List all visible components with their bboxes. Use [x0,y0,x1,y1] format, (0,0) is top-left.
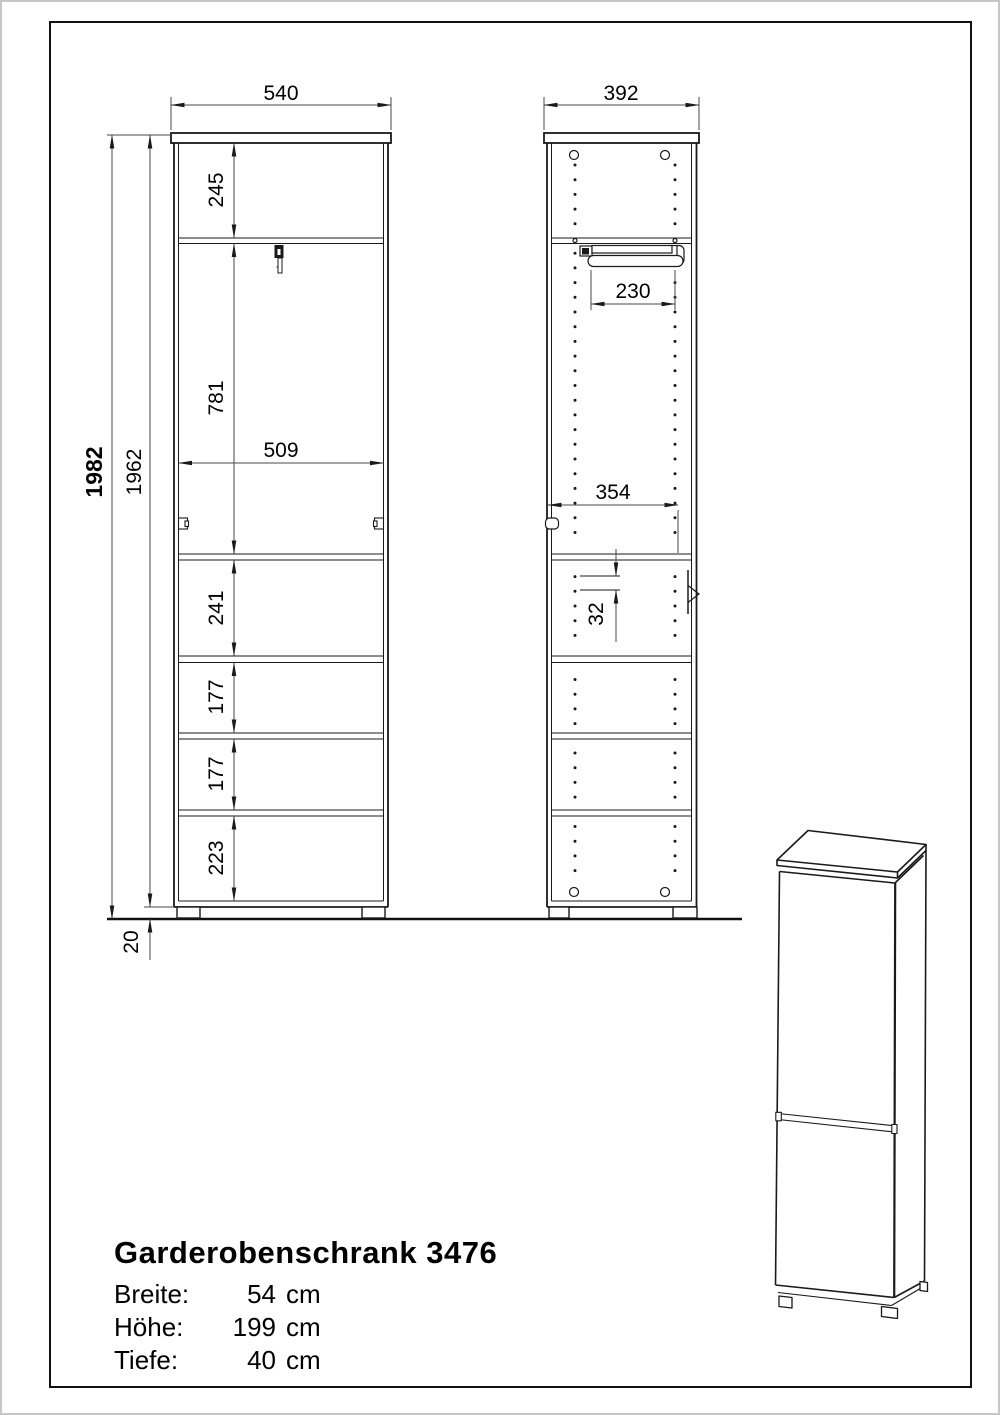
side-foot-front [549,907,569,918]
divider-strip [776,1112,897,1133]
title-block: Garderobenschrank 3476 Breite: 54 cm Höh… [114,1235,497,1377]
pullout-rail [580,246,684,267]
front-view-dimensions [107,97,391,960]
dim-side-rail-depth: 230 [615,280,650,303]
spec-label: Höhe: [114,1311,218,1344]
front-hinges [179,518,384,529]
dim-side-hole-pitch: 32 [585,602,608,625]
dim-front-width: 540 [263,82,298,105]
side-foot-back [673,907,697,918]
spec-row-width: Breite: 54 cm [114,1278,497,1311]
front-top-panel [171,133,391,143]
dim-front-opening-width: 509 [263,439,298,462]
front-foot-left [177,907,200,918]
spec-value: 199 [218,1311,276,1344]
front-shelves [179,238,384,901]
spec-label: Breite: [114,1278,218,1311]
side-top-panel [544,133,699,143]
spec-label: Tiefe: [114,1344,218,1377]
spec-row-height: Höhe: 199 cm [114,1311,497,1344]
pin-hole-rows [574,164,677,873]
dim-front-section-3: 177 [205,756,228,791]
spec-unit: cm [286,1344,321,1377]
spec-value: 54 [218,1278,276,1311]
dim-front-body-height: 1962 [123,449,146,496]
spec-row-depth: Tiefe: 40 cm [114,1344,497,1377]
hole-pitch-marks [580,576,620,590]
side-view-dimension-labels: 392 230 354 32 [585,82,651,626]
front-view-drawing [171,133,391,918]
dim-front-top-section: 245 [205,172,228,207]
technical-drawing-page: 540 509 1982 1962 20 245 781 241 177 177… [0,0,1000,1415]
perspective-view-drawing [776,831,928,1319]
side-hinge [546,518,559,529]
lock-key-icon [275,245,284,273]
spec-unit: cm [286,1311,321,1344]
side-view-drawing [544,133,699,918]
product-title: Garderobenschrank 3476 [114,1235,497,1271]
product-specs: Breite: 54 cm Höhe: 199 cm Tiefe: 40 cm [114,1278,497,1377]
front-view-dimension-labels: 540 509 1982 1962 20 245 781 241 177 177… [81,82,299,954]
front-foot-right [362,907,385,918]
spec-value: 40 [218,1344,276,1377]
dim-front-bottom-section: 223 [205,840,228,875]
dim-front-section-1: 241 [205,590,228,625]
dim-side-inner-depth: 354 [595,481,630,504]
spec-unit: cm [286,1278,321,1311]
drawing-canvas: 540 509 1982 1962 20 245 781 241 177 177… [2,2,1000,1415]
dim-front-foot-height: 20 [120,930,143,953]
dim-front-upper-section: 781 [205,380,228,415]
dim-front-section-2: 177 [205,679,228,714]
dim-front-total-height: 1982 [81,446,107,497]
side-shelves [552,238,692,901]
dim-side-depth: 392 [603,82,638,105]
